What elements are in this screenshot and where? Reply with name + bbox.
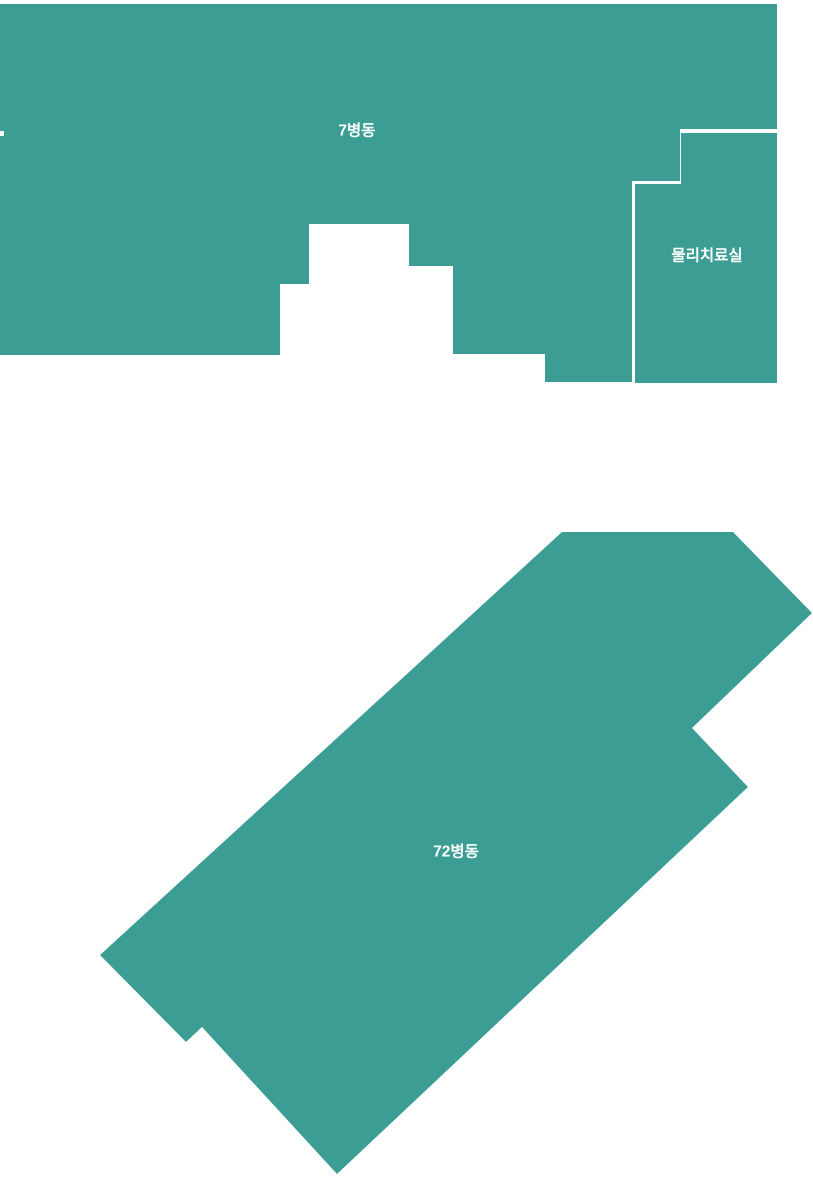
- area-ward-72: 72병동: [100, 532, 812, 1174]
- ward-72-region[interactable]: [100, 532, 812, 1174]
- floor-map-canvas: 7병동 물리치료실 72병동: [0, 0, 813, 1177]
- hospital-floor-map: 7병동 물리치료실 72병동: [0, 0, 813, 1177]
